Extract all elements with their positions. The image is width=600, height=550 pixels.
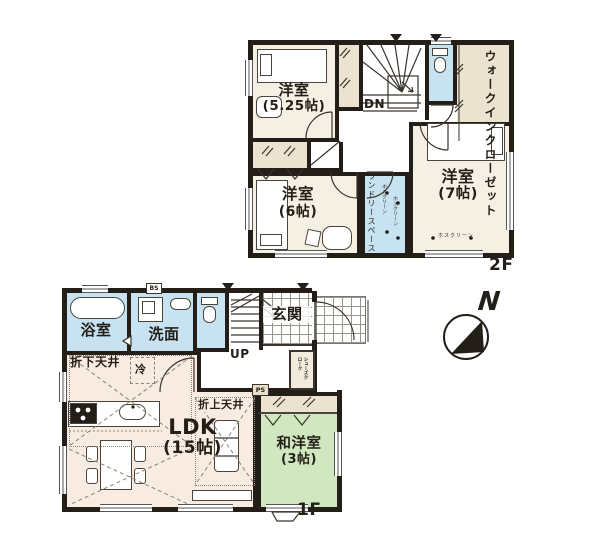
washing-machine-drum	[142, 301, 155, 314]
toilet-bowl-2f	[434, 57, 446, 73]
compass-north-label: N	[476, 288, 501, 318]
chair-6	[322, 226, 352, 250]
room-7-label: 洋室 (7帖)	[420, 168, 496, 203]
window	[245, 188, 253, 230]
bs-label: BS	[146, 283, 162, 294]
window	[59, 446, 67, 494]
closet-1f	[257, 392, 337, 414]
room-525-name: 洋室	[252, 82, 336, 99]
pillow-6	[260, 234, 282, 246]
chair	[134, 446, 146, 462]
room-7-size: (7帖)	[420, 186, 496, 203]
window	[178, 504, 233, 512]
room-6-name: 洋室	[255, 186, 341, 204]
window	[275, 250, 327, 258]
room-7-name: 洋室	[420, 168, 496, 186]
wic-label: ウォークインクローゼット	[464, 50, 498, 142]
bathtub	[70, 297, 125, 319]
toilet-tank-1f	[201, 297, 218, 305]
closet-2f-corner	[311, 142, 343, 172]
room-525-label: 洋室 (5.25帖)	[252, 82, 336, 115]
window	[82, 285, 108, 293]
floor-2-label: 2F	[489, 256, 513, 276]
ldk-size: (15帖)	[150, 439, 235, 459]
pillow-525	[260, 54, 272, 76]
window	[506, 152, 514, 230]
floor-1-label: 1F	[297, 501, 321, 521]
shoe-closet: シューズクローク	[289, 350, 315, 390]
room-525-size: (5.25帖)	[252, 99, 336, 115]
tv-board	[192, 490, 252, 501]
window	[425, 250, 483, 258]
stairs-dn-label: DN	[364, 98, 385, 112]
toilet-bowl-1f	[203, 306, 216, 323]
ldk-name: LDK	[150, 415, 235, 439]
chair	[134, 468, 146, 484]
window	[431, 37, 451, 45]
tatami-size: (3帖)	[262, 453, 336, 468]
room-6-label: 洋室 (6帖)	[255, 186, 341, 220]
window	[100, 504, 152, 512]
wash-basin	[170, 298, 191, 310]
fridge-label: 冷	[135, 364, 147, 377]
toilet-tank-2f	[432, 48, 448, 56]
stairs-up-label: UP	[230, 348, 250, 362]
washroom-label: 洗面	[133, 326, 195, 343]
lowered-ceiling-label: 折下天井	[70, 356, 120, 370]
porch	[314, 296, 366, 344]
laundry-label: ランドリースペース	[366, 172, 376, 252]
floor-plan-canvas: シューズクローク	[0, 0, 600, 550]
closet-2f-a	[339, 45, 363, 111]
window	[59, 372, 67, 402]
shoe-closet-label: シューズクローク	[296, 357, 308, 383]
ps-label: PS	[252, 384, 269, 396]
entrance-label: 玄関	[263, 306, 311, 323]
tatami-label: 和洋室 (3帖)	[262, 436, 336, 468]
room-6-size: (6帖)	[255, 204, 341, 220]
bathroom-label: 浴室	[67, 322, 125, 339]
tatami-name: 和洋室	[262, 436, 336, 453]
staircase-1f	[229, 293, 263, 350]
compass-icon	[444, 315, 488, 359]
hoscreen-label: ホスクリーン	[392, 196, 398, 230]
dining-table	[100, 440, 132, 490]
ldk-label: LDK (15帖)	[150, 415, 235, 459]
raised-ceiling-label: 折上天井	[198, 399, 244, 412]
closet-2f-b	[253, 142, 311, 172]
hoscreen-label: ホスクリーン	[381, 184, 387, 218]
chair	[86, 446, 98, 462]
chair	[86, 468, 98, 484]
hoscreen-label: ホスクリーン	[438, 234, 474, 240]
